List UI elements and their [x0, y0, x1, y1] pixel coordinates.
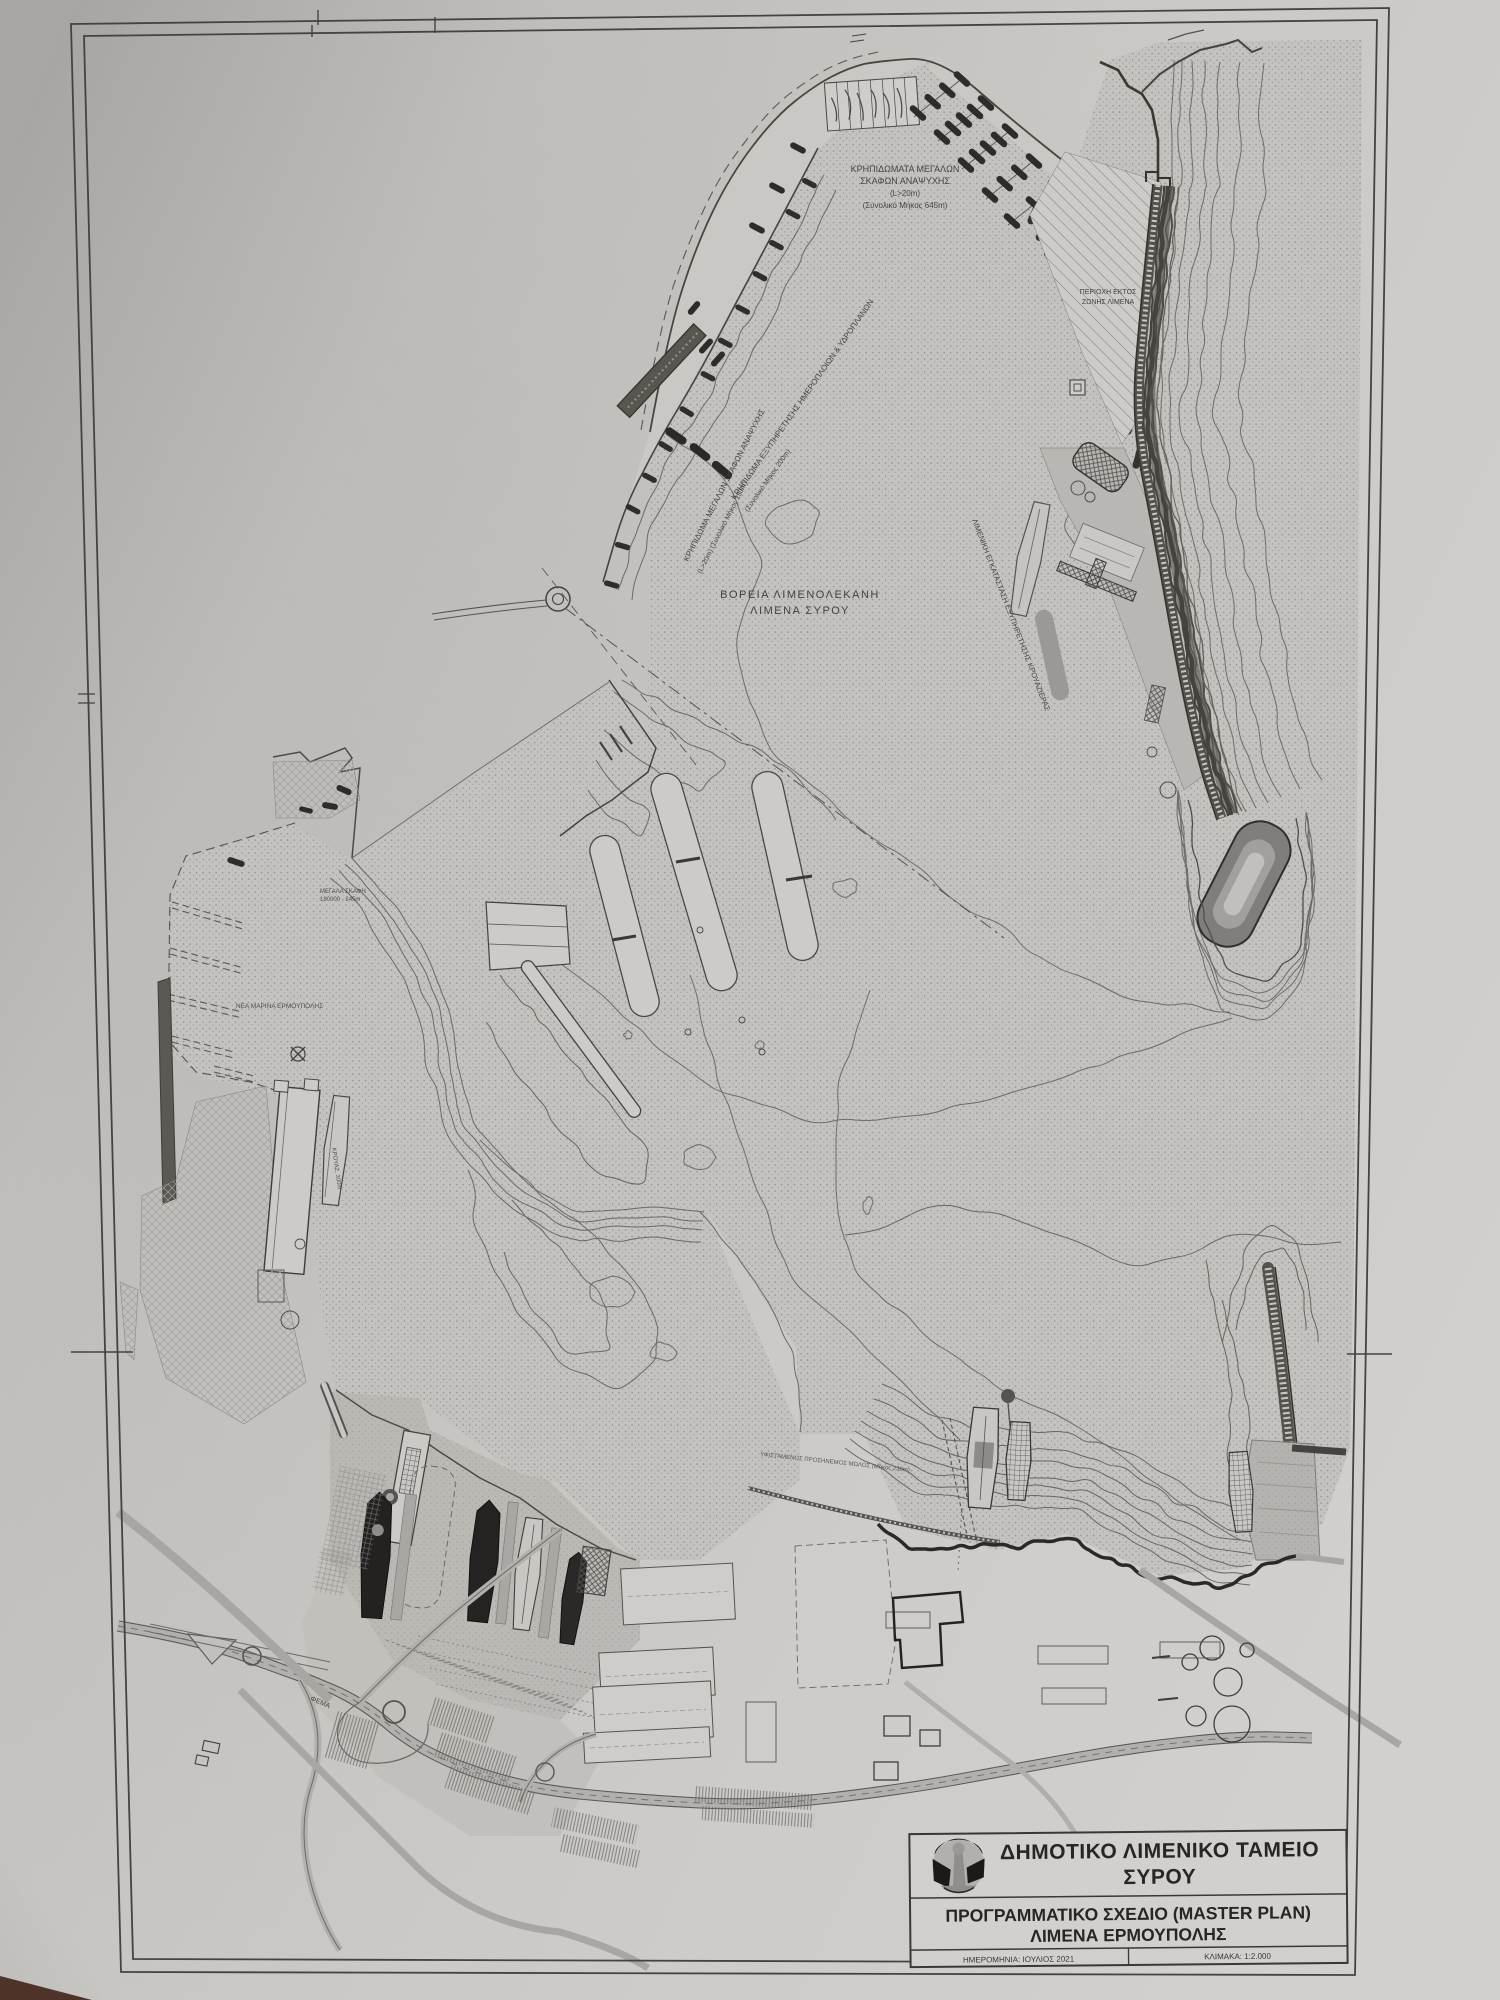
svg-text:ΛΙΜΕΝΑ ΕΡΜΟΥΠΟΛΗΣ: ΛΙΜΕΝΑ ΕΡΜΟΥΠΟΛΗΣ	[1030, 1924, 1226, 1946]
svg-text:ΠΡΟΓΡΑΜΜΑΤΙΚΟ ΣΧΕΔΙΟ (MASTER: ΠΡΟΓΡΑΜΜΑΤΙΚΟ ΣΧΕΔΙΟ (MASTER PLAN)	[945, 1902, 1311, 1926]
svg-text:ΠΕΡΙΟΧΗ ΕΚΤΟΣ: ΠΕΡΙΟΧΗ ΕΚΤΟΣ	[1080, 289, 1137, 296]
svg-text:ΔΗΜΟΤΙΚΟ ΛΙΜΕΝΙΚΟ ΤΑΜΕΙΟ: ΔΗΜΟΤΙΚΟ ΛΙΜΕΝΙΚΟ ΤΑΜΕΙΟ	[1000, 1838, 1319, 1864]
svg-text:ΚΛΙΜΑΚΑ: 1:2.000: ΚΛΙΜΑΚΑ: 1:2.000	[1204, 1952, 1271, 1962]
svg-text:(Συνολικό Μήκος 645m): (Συνολικό Μήκος 645m)	[863, 201, 948, 210]
svg-text:(L>20m): (L>20m)	[890, 189, 920, 198]
svg-text:ΖΩΝΗΣ ΛΙΜΕΝΑ: ΖΩΝΗΣ ΛΙΜΕΝΑ	[1082, 299, 1135, 306]
svg-text:ΝΕΑ ΜΑΡΙΝΑ ΕΡΜΟΥΠΟΛΗΣ: ΝΕΑ ΜΑΡΙΝΑ ΕΡΜΟΥΠΟΛΗΣ	[236, 1003, 323, 1010]
svg-text:180000 - 245m: 180000 - 245m	[320, 897, 360, 903]
svg-text:ΛΙΜΕΝΑ ΣΥΡΟΥ: ΛΙΜΕΝΑ ΣΥΡΟΥ	[750, 605, 850, 617]
svg-text:ΜΕΓΑΛΑ ΣΚΑΦΗ: ΜΕΓΑΛΑ ΣΚΑΦΗ	[320, 889, 366, 895]
svg-text:ΗΜΕΡΟΜΗΝΙΑ: ΙΟΥΛΙΟΣ 2021: ΗΜΕΡΟΜΗΝΙΑ: ΙΟΥΛΙΟΣ 2021	[963, 1955, 1075, 1965]
svg-text:ΣΥΡΟΥ: ΣΥΡΟΥ	[1123, 1865, 1196, 1889]
svg-text:ΒΟΡΕΙΑ ΛΙΜΕΝΟΛΕΚΑΝΗ: ΒΟΡΕΙΑ ΛΙΜΕΝΟΛΕΚΑΝΗ	[720, 589, 880, 601]
svg-text:ΣΚΑΦΩΝ ΑΝΑΨΥΧΗΣ: ΣΚΑΦΩΝ ΑΝΑΨΥΧΗΣ	[860, 176, 950, 186]
svg-text:ΚΡΗΠΙΔΩΜΑΤΑ ΜΕΓΑΛΩΝ: ΚΡΗΠΙΔΩΜΑΤΑ ΜΕΓΑΛΩΝ	[851, 164, 960, 174]
